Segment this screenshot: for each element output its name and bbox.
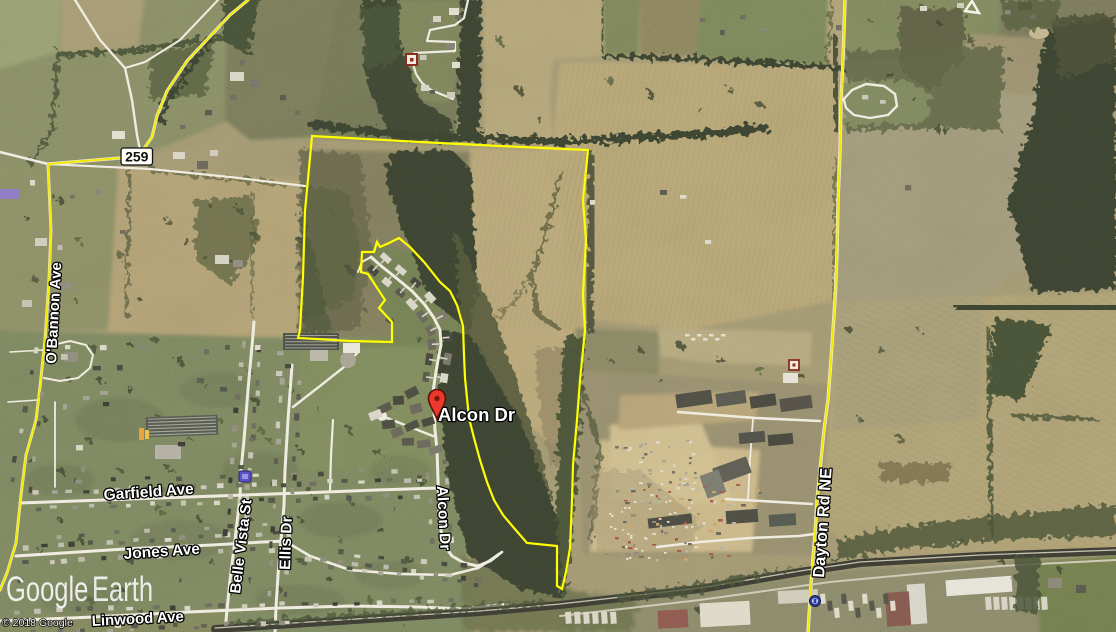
svg-text:259: 259 xyxy=(125,149,149,165)
svg-text:Alcon Dr: Alcon Dr xyxy=(438,404,515,425)
svg-text:Alcon Dr: Alcon Dr xyxy=(433,485,453,550)
svg-text:© 2018 Google: © 2018 Google xyxy=(2,617,73,629)
svg-text:Ellis Dr: Ellis Dr xyxy=(277,516,296,570)
svg-text:GoogleEarth: GoogleEarth xyxy=(6,570,153,609)
